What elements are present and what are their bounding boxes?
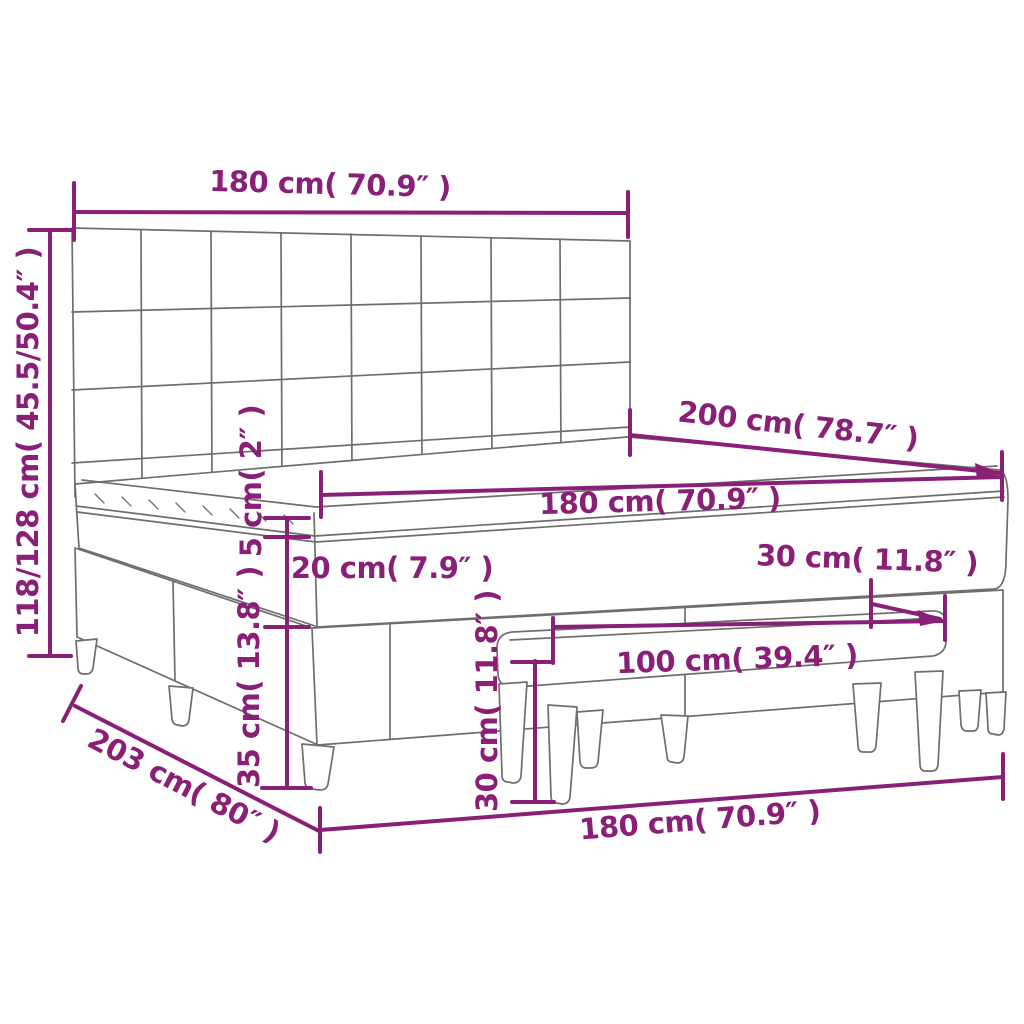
bench-leg — [661, 715, 688, 763]
label-bench-height: 30 cm( 11.8″ ) — [470, 590, 504, 812]
bed-leg — [959, 690, 981, 731]
diagram-canvas: 180 cm( 70.9″ ) 118/128 cm( 45.5/50.4″ )… — [0, 0, 1024, 1024]
label-headboard-width: 180 cm( 70.9″ ) — [209, 164, 452, 204]
bed-leg — [577, 710, 603, 768]
bed-leg — [76, 639, 97, 674]
bench-leg — [853, 683, 881, 752]
bed-dimension-diagram: 180 cm( 70.9″ ) 118/128 cm( 45.5/50.4″ )… — [0, 0, 1024, 1024]
bed-leg — [169, 686, 193, 726]
bed-leg — [302, 744, 334, 790]
bench-leg — [548, 705, 577, 804]
label-mattress-thickness: 20 cm( 7.9″ ) — [291, 551, 493, 585]
label-mattress-width: 180 cm( 70.9″ ) — [539, 481, 782, 521]
label-topper-thickness: 5 cm( 2″ ) — [234, 405, 268, 558]
bed-leg — [986, 692, 1006, 735]
label-overall-height: 118/128 cm( 45.5/50.4″ ) — [11, 247, 45, 638]
bench-legs-back — [661, 715, 688, 763]
bench-leg — [915, 671, 943, 771]
label-base-height: 35 cm( 13.8″ ) — [232, 566, 266, 788]
